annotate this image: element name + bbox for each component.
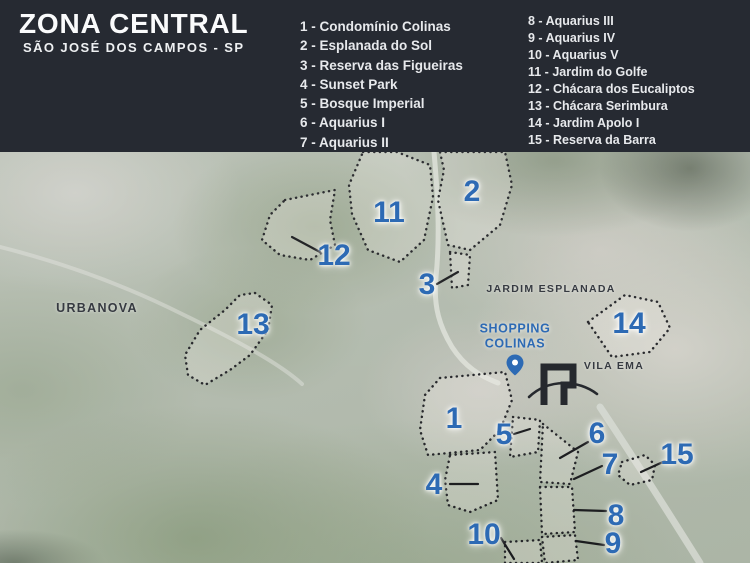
leader-line-8	[574, 510, 606, 511]
legend-item: 11 - Jardim do Golfe	[528, 64, 695, 81]
page-subtitle: SÃO JOSÉ DOS CAMPOS - SP	[23, 40, 244, 55]
legend-item: 7 - Aquarius II	[300, 133, 463, 152]
legend-item: 5 - Bosque Imperial	[300, 94, 463, 113]
arch-monument-logo-icon	[527, 355, 599, 405]
satellite-map: 1 2 3 4 5 6 7 8 9 10 11 12 13 14 15 URBA…	[0, 152, 750, 563]
leader-line-7	[574, 466, 602, 479]
area-label-jardim-esplanada: JARDIM ESPLANADA	[486, 283, 615, 295]
page-title: ZONA CENTRAL	[19, 8, 248, 40]
zona-central-infographic: ZONA CENTRAL SÃO JOSÉ DOS CAMPOS - SP 1 …	[0, 0, 750, 563]
map-marker-10: 10	[467, 518, 500, 552]
map-marker-4: 4	[426, 468, 443, 502]
legend-item: 13 - Chácara Serimbura	[528, 98, 695, 115]
location-pin-icon	[507, 355, 524, 376]
legend-item: 6 - Aquarius I	[300, 113, 463, 132]
shopping-colinas-label: SHOPPING COLINAS	[480, 322, 551, 351]
map-marker-14: 14	[612, 307, 645, 341]
region-outline-4	[445, 452, 498, 512]
map-marker-11: 11	[373, 196, 405, 230]
map-marker-13: 13	[236, 308, 269, 342]
region-outline-6	[540, 424, 578, 484]
legend-item: 10 - Aquarius V	[528, 47, 695, 64]
map-marker-5: 5	[496, 418, 513, 452]
map-marker-12: 12	[317, 239, 350, 273]
region-outline-3	[450, 252, 470, 288]
map-marker-6: 6	[589, 417, 606, 451]
region-outline-7-8	[540, 487, 575, 534]
map-marker-2: 2	[464, 175, 481, 209]
legend-item: 15 - Reserva da Barra	[528, 132, 695, 149]
region-outline-9	[542, 535, 578, 563]
legend-item: 8 - Aquarius III	[528, 13, 695, 30]
header: ZONA CENTRAL SÃO JOSÉ DOS CAMPOS - SP 1 …	[0, 0, 750, 152]
map-marker-1: 1	[446, 402, 463, 436]
map-marker-9: 9	[605, 527, 622, 561]
legend-item: 12 - Chácara dos Eucaliptos	[528, 81, 695, 98]
region-outline-5	[510, 417, 540, 457]
legend-item: 4 - Sunset Park	[300, 75, 463, 94]
shopping-colinas-line1: SHOPPING	[480, 322, 551, 337]
area-label-urbanova: URBANOVA	[56, 301, 138, 315]
map-marker-15: 15	[660, 438, 693, 472]
leader-line-9	[576, 541, 604, 545]
legend-item: 14 - Jardim Apolo I	[528, 115, 695, 132]
map-marker-3: 3	[419, 268, 436, 302]
legend-item: 1 - Condomínio Colinas	[300, 17, 463, 36]
legend-item: 2 - Esplanada do Sol	[300, 36, 463, 55]
legend-item: 3 - Reserva das Figueiras	[300, 56, 463, 75]
legend-column-2: 8 - Aquarius III 9 - Aquarius IV 10 - Aq…	[528, 13, 695, 149]
map-marker-7: 7	[602, 448, 619, 482]
legend-item: 9 - Aquarius IV	[528, 30, 695, 47]
region-outline-15	[618, 455, 655, 485]
shopping-colinas-line2: COLINAS	[480, 336, 551, 351]
legend-column-1: 1 - Condomínio Colinas 2 - Esplanada do …	[300, 17, 463, 152]
